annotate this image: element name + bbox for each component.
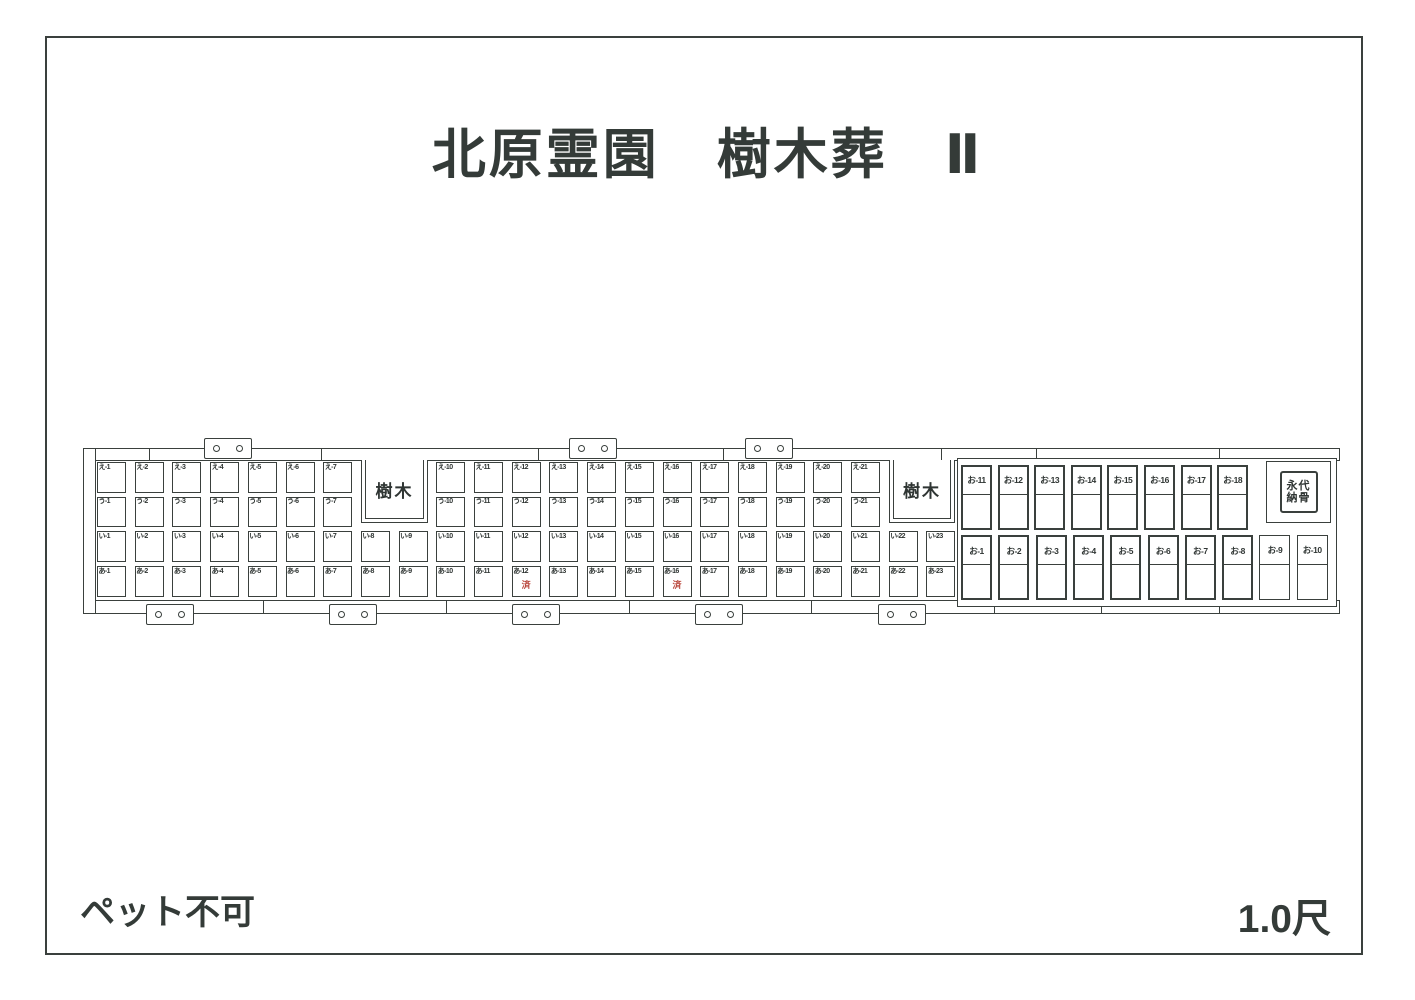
plot-cell: い-20 <box>813 531 842 562</box>
plot-label: お-6 <box>1150 537 1177 565</box>
plot-cell: あ-17 <box>700 566 729 597</box>
plot-label: い-6 <box>287 531 298 541</box>
plot-label: い-11 <box>476 531 490 541</box>
scanned-map-page: 北原霊園 樹木葬 Ⅱ え-1え-2え-3え-4え-5え-6え-7え-10え-11… <box>0 0 1415 1000</box>
plot-label: あ-20 <box>815 566 830 576</box>
plot-label: う-11 <box>476 496 490 506</box>
plot-cell: い-1 <box>97 531 126 562</box>
plot-label: え-18 <box>739 462 754 472</box>
tree-area-inner-frame: 樹木 <box>893 460 951 519</box>
plot-label: あ-10 <box>438 566 453 576</box>
plot-label: え-1 <box>99 462 110 472</box>
plot-cell: あ-3 <box>172 566 201 597</box>
plot-cell: う-11 <box>474 497 503 528</box>
plot-label: え-6 <box>287 462 298 472</box>
plot-label: あ-9 <box>400 566 411 576</box>
plot-cell: い-22 <box>889 531 918 562</box>
plot-label: い-23 <box>928 531 943 541</box>
plot-label: あ-13 <box>551 566 566 576</box>
plot-label: あ-14 <box>589 566 604 576</box>
plot-cell: お-16 <box>1144 465 1175 530</box>
screw-hole-icon <box>338 611 345 618</box>
plot-label: あ-3 <box>174 566 185 576</box>
screw-hole-icon <box>887 611 894 618</box>
mounting-tab <box>204 438 252 459</box>
plot-cell: う-3 <box>172 497 201 528</box>
plot-label: い-16 <box>664 531 679 541</box>
plot-label: い-19 <box>777 531 792 541</box>
plot-cell: い-13 <box>549 531 578 562</box>
plot-cell: え-5 <box>248 462 277 493</box>
plot-cell: あ-20 <box>813 566 842 597</box>
screw-hole-icon <box>578 445 585 452</box>
plot-label: う-7 <box>325 496 336 506</box>
plot-label: お-2 <box>1000 537 1027 565</box>
screw-hole-icon <box>213 445 220 452</box>
mounting-tab <box>878 604 926 625</box>
frame-segment-divider <box>446 601 447 613</box>
plot-cell: う-4 <box>210 497 239 528</box>
plot-label: い-1 <box>99 531 110 541</box>
screw-hole-icon <box>754 445 761 452</box>
plot-cell: あ-6 <box>286 566 315 597</box>
plot-label: あ-19 <box>777 566 792 576</box>
plot-cell: え-17 <box>700 462 729 493</box>
plot-label: い-17 <box>702 531 717 541</box>
plot-cell: あ-12済 <box>512 566 541 597</box>
plot-cell: う-2 <box>135 497 164 528</box>
plot-label: え-14 <box>589 462 604 472</box>
plot-cell: お-10 <box>1297 535 1328 600</box>
no-pets-note: ペット不可 <box>80 884 255 935</box>
plot-cell: い-12 <box>512 531 541 562</box>
plot-cell: い-7 <box>323 531 352 562</box>
mounting-tab <box>146 604 194 625</box>
plot-cell: い-3 <box>172 531 201 562</box>
plot-label: あ-18 <box>739 566 754 576</box>
screw-hole-icon <box>704 611 711 618</box>
plot-label: あ-7 <box>325 566 336 576</box>
plot-cell: え-12 <box>512 462 541 493</box>
plot-cell: あ-9 <box>399 566 428 597</box>
plot-label: あ-17 <box>702 566 717 576</box>
plot-label: う-13 <box>551 496 566 506</box>
plot-label: え-20 <box>815 462 830 472</box>
plot-cell: え-7 <box>323 462 352 493</box>
plot-label: あ-1 <box>99 566 110 576</box>
plot-cell: あ-14 <box>587 566 616 597</box>
plot-cell: う-14 <box>587 497 616 528</box>
plot-label: え-4 <box>212 462 223 472</box>
plot-cell: え-20 <box>813 462 842 493</box>
plot-cell: あ-15 <box>625 566 654 597</box>
plot-label: え-17 <box>702 462 717 472</box>
plot-cell: う-12 <box>512 497 541 528</box>
plot-cell: あ-8 <box>361 566 390 597</box>
plot-label: お-11 <box>963 467 990 495</box>
plot-cell: う-5 <box>248 497 277 528</box>
plot-cell: う-6 <box>286 497 315 528</box>
plot-cell: い-18 <box>738 531 767 562</box>
plot-cell: お-1 <box>961 535 992 600</box>
eternal-ossuary-box: 永代 納骨 <box>1266 461 1331 523</box>
tree-area-label: 樹木 <box>903 477 941 502</box>
plot-label: い-10 <box>438 531 453 541</box>
plot-label: い-21 <box>853 531 868 541</box>
plot-label: お-12 <box>1000 467 1027 495</box>
plot-label: お-10 <box>1298 536 1327 565</box>
tree-area-box-1: 樹木 <box>361 460 428 523</box>
plot-label: え-11 <box>476 462 490 472</box>
plot-label: い-22 <box>890 531 905 541</box>
mounting-tab <box>569 438 617 459</box>
plot-cell: い-21 <box>851 531 880 562</box>
plot-cell: い-4 <box>210 531 239 562</box>
plot-label: お-3 <box>1038 537 1065 565</box>
plot-cell: あ-2 <box>135 566 164 597</box>
plot-cell: え-2 <box>135 462 164 493</box>
plot-cell: え-4 <box>210 462 239 493</box>
plot-label: あ-21 <box>853 566 868 576</box>
plot-label: う-20 <box>815 496 830 506</box>
plot-cell: あ-5 <box>248 566 277 597</box>
plot-cell: え-16 <box>663 462 692 493</box>
plot-label: あ-4 <box>212 566 223 576</box>
plot-label: あ-6 <box>287 566 298 576</box>
plot-label: い-18 <box>739 531 754 541</box>
plot-label: い-2 <box>136 531 147 541</box>
sold-mark: 済 <box>513 578 540 591</box>
plot-cell: あ-18 <box>738 566 767 597</box>
plot-cell: い-5 <box>248 531 277 562</box>
plot-label: あ-23 <box>928 566 943 576</box>
plot-cell: う-20 <box>813 497 842 528</box>
plot-label: お-15 <box>1109 467 1136 495</box>
plot-label: う-18 <box>739 496 754 506</box>
frame-segment-divider <box>263 601 264 613</box>
plot-label: う-6 <box>287 496 298 506</box>
plot-cell: あ-13 <box>549 566 578 597</box>
plot-label: う-21 <box>853 496 868 506</box>
plot-cell: え-6 <box>286 462 315 493</box>
plot-cell: え-1 <box>97 462 126 493</box>
plot-cell: え-15 <box>625 462 654 493</box>
plot-cell: あ-1 <box>97 566 126 597</box>
eternal-ossuary-inner-box: 永代 納骨 <box>1280 471 1318 513</box>
plot-label: お-4 <box>1075 537 1102 565</box>
plot-label: い-8 <box>362 531 373 541</box>
plot-label: え-2 <box>136 462 147 472</box>
plot-label: う-3 <box>174 496 185 506</box>
plot-cell: え-19 <box>776 462 805 493</box>
plot-label: う-1 <box>99 496 110 506</box>
plot-label: あ-22 <box>890 566 905 576</box>
frame-segment-divider <box>723 449 724 460</box>
plot-label: あ-11 <box>476 566 490 576</box>
frame-segment-divider <box>538 449 539 460</box>
plot-cell: い-17 <box>700 531 729 562</box>
plot-label: お-14 <box>1073 467 1100 495</box>
plot-label: お-9 <box>1260 536 1289 565</box>
plot-cell: い-19 <box>776 531 805 562</box>
mounting-tab <box>329 604 377 625</box>
plot-cell: え-18 <box>738 462 767 493</box>
plot-cell: あ-7 <box>323 566 352 597</box>
plot-cell: お-2 <box>998 535 1029 600</box>
plot-cell: え-13 <box>549 462 578 493</box>
plot-label: え-15 <box>626 462 641 472</box>
plot-cell: う-17 <box>700 497 729 528</box>
plot-label: う-12 <box>513 496 528 506</box>
plot-label: い-4 <box>212 531 223 541</box>
plot-cell: あ-21 <box>851 566 880 597</box>
plot-cell: い-15 <box>625 531 654 562</box>
plot-label: お-18 <box>1219 467 1246 495</box>
plot-cell: あ-11 <box>474 566 503 597</box>
plot-label: う-14 <box>589 496 604 506</box>
plot-cell: え-14 <box>587 462 616 493</box>
eternal-ossuary-label-line1: 永代 <box>1287 480 1311 492</box>
plot-cell: あ-22 <box>889 566 918 597</box>
plot-cell: え-21 <box>851 462 880 493</box>
plot-label: う-10 <box>438 496 453 506</box>
plot-label: う-19 <box>777 496 792 506</box>
tree-area-label: 樹木 <box>376 477 414 502</box>
plot-cell: う-10 <box>436 497 465 528</box>
screw-hole-icon <box>601 445 608 452</box>
plot-cell: い-8 <box>361 531 390 562</box>
plot-label: お-16 <box>1146 467 1173 495</box>
plot-cell: う-19 <box>776 497 805 528</box>
plot-label: お-8 <box>1224 537 1251 565</box>
plot-label: い-15 <box>626 531 641 541</box>
plot-label: あ-15 <box>626 566 641 576</box>
plot-label: え-21 <box>853 462 868 472</box>
plot-label: う-2 <box>136 496 147 506</box>
plot-label: え-16 <box>664 462 679 472</box>
plot-label: あ-16 <box>664 566 679 576</box>
plot-cell: い-23 <box>926 531 955 562</box>
plot-cell: お-12 <box>998 465 1029 530</box>
sold-mark: 済 <box>664 578 691 591</box>
plot-cell: う-16 <box>663 497 692 528</box>
plot-cell: お-9 <box>1259 535 1290 600</box>
plot-cell: う-15 <box>625 497 654 528</box>
plot-label: い-14 <box>589 531 604 541</box>
page-title: 北原霊園 樹木葬 Ⅱ <box>0 110 1415 189</box>
plot-cell: お-8 <box>1222 535 1253 600</box>
plot-cell: い-2 <box>135 531 164 562</box>
plot-cell: え-3 <box>172 462 201 493</box>
plot-cell: あ-4 <box>210 566 239 597</box>
plot-cell: う-13 <box>549 497 578 528</box>
tree-area-inner-frame: 樹木 <box>365 460 424 519</box>
plot-label: お-5 <box>1112 537 1139 565</box>
screw-hole-icon <box>155 611 162 618</box>
plot-label: う-17 <box>702 496 717 506</box>
plot-label: い-20 <box>815 531 830 541</box>
plot-label: お-13 <box>1036 467 1063 495</box>
plot-cell: あ-16済 <box>663 566 692 597</box>
screw-hole-icon <box>521 611 528 618</box>
frame-segment-divider <box>811 601 812 613</box>
plot-label: う-4 <box>212 496 223 506</box>
plot-cell: お-5 <box>1110 535 1141 600</box>
plot-label: え-3 <box>174 462 185 472</box>
plot-cell: あ-10 <box>436 566 465 597</box>
plot-label: お-7 <box>1187 537 1214 565</box>
tree-area-box-2: 樹木 <box>889 460 955 523</box>
screw-hole-icon <box>910 611 917 618</box>
frame-segment-divider <box>941 449 942 460</box>
frame-segment-divider <box>629 601 630 613</box>
plot-cell: う-1 <box>97 497 126 528</box>
plot-label: あ-5 <box>249 566 260 576</box>
plot-label: え-19 <box>777 462 792 472</box>
screw-hole-icon <box>178 611 185 618</box>
plot-label: い-9 <box>400 531 411 541</box>
plot-cell: い-9 <box>399 531 428 562</box>
plot-cell: お-4 <box>1073 535 1104 600</box>
plot-label: う-16 <box>664 496 679 506</box>
plot-cell: お-18 <box>1217 465 1248 530</box>
plot-label: い-12 <box>513 531 528 541</box>
plot-label: あ-12 <box>513 566 528 576</box>
plot-label: え-12 <box>513 462 528 472</box>
plot-scale-note: 1.0尺 <box>1238 888 1331 944</box>
plot-cell: い-10 <box>436 531 465 562</box>
plot-label: い-7 <box>325 531 336 541</box>
plot-cell: お-15 <box>1107 465 1138 530</box>
plot-cell: お-7 <box>1185 535 1216 600</box>
plot-cell: い-14 <box>587 531 616 562</box>
mounting-tab <box>512 604 560 625</box>
plot-label: あ-8 <box>362 566 373 576</box>
plot-label: い-3 <box>174 531 185 541</box>
frame-segment-divider <box>149 449 150 460</box>
mounting-tab <box>695 604 743 625</box>
screw-hole-icon <box>777 445 784 452</box>
plot-cell: う-7 <box>323 497 352 528</box>
plot-label: え-5 <box>249 462 260 472</box>
plot-label: う-15 <box>626 496 641 506</box>
map-left-frame-strip <box>83 448 96 614</box>
plot-label: お-17 <box>1183 467 1210 495</box>
plot-label: う-5 <box>249 496 260 506</box>
plot-cell: う-18 <box>738 497 767 528</box>
plot-cell: う-21 <box>851 497 880 528</box>
plot-cell: お-13 <box>1034 465 1065 530</box>
screw-hole-icon <box>727 611 734 618</box>
mounting-tab <box>745 438 793 459</box>
plot-cell: い-16 <box>663 531 692 562</box>
plot-cell: え-10 <box>436 462 465 493</box>
plot-cell: い-6 <box>286 531 315 562</box>
plot-label: え-7 <box>325 462 336 472</box>
plot-cell: あ-23 <box>926 566 955 597</box>
plot-label: え-13 <box>551 462 566 472</box>
plot-label: あ-2 <box>136 566 147 576</box>
screw-hole-icon <box>236 445 243 452</box>
plot-cell: お-6 <box>1148 535 1179 600</box>
plot-cell: お-3 <box>1036 535 1067 600</box>
screw-hole-icon <box>544 611 551 618</box>
plot-cell: え-11 <box>474 462 503 493</box>
plot-label: い-5 <box>249 531 260 541</box>
plot-cell: あ-19 <box>776 566 805 597</box>
eternal-ossuary-label-line2: 納骨 <box>1287 492 1311 504</box>
plot-label: お-1 <box>963 537 990 565</box>
plot-cell: い-11 <box>474 531 503 562</box>
plot-cell: お-11 <box>961 465 992 530</box>
plot-cell: お-17 <box>1181 465 1212 530</box>
frame-segment-divider <box>321 449 322 460</box>
plot-label: い-13 <box>551 531 566 541</box>
screw-hole-icon <box>361 611 368 618</box>
plot-cell: お-14 <box>1071 465 1102 530</box>
plot-label: え-10 <box>438 462 453 472</box>
